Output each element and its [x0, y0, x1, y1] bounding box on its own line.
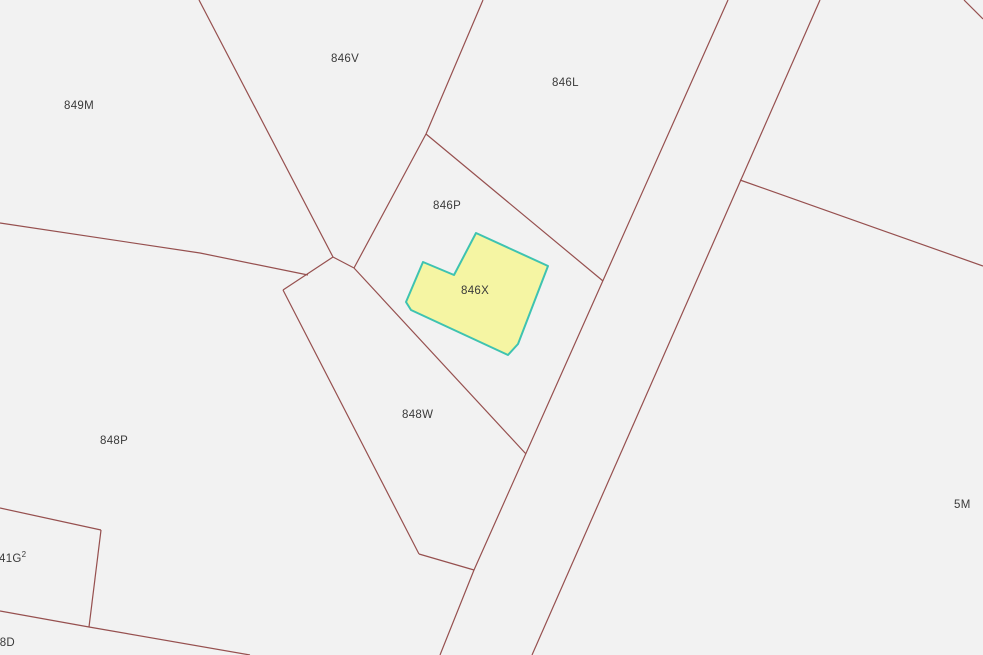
map-viewport[interactable]: 849M846V846L846P846X848W848P41G248D5M: [0, 0, 983, 655]
parcel-boundary-41g2-top-edge: [0, 508, 101, 530]
parcel-boundary-top-to-junction: [426, 0, 483, 134]
parcel-boundary-848w-bottom-edge: [419, 554, 474, 570]
parcel-boundary-junction-to-knot: [354, 134, 426, 268]
highlighted-parcel-846X[interactable]: [406, 233, 548, 355]
parcel-boundary-branch-to-right-edge: [740, 180, 983, 266]
parcel-boundary-top-right-corner: [964, 0, 983, 19]
parcel-boundary-848w-left-edge: [283, 290, 419, 554]
parcel-boundary-knot-short-edge: [333, 257, 354, 268]
parcel-boundary-left-horizontal: [0, 223, 308, 275]
parcel-map-canvas: [0, 0, 983, 655]
parcel-boundary-knot-to-corner: [283, 257, 333, 290]
parcel-boundary-top-left-to-knot: [199, 0, 333, 257]
parcel-boundary-41g2-right-edge: [89, 530, 101, 627]
parcel-boundary-road-right-line: [532, 0, 820, 655]
parcel-boundary-bottom-diagonal: [0, 611, 250, 655]
